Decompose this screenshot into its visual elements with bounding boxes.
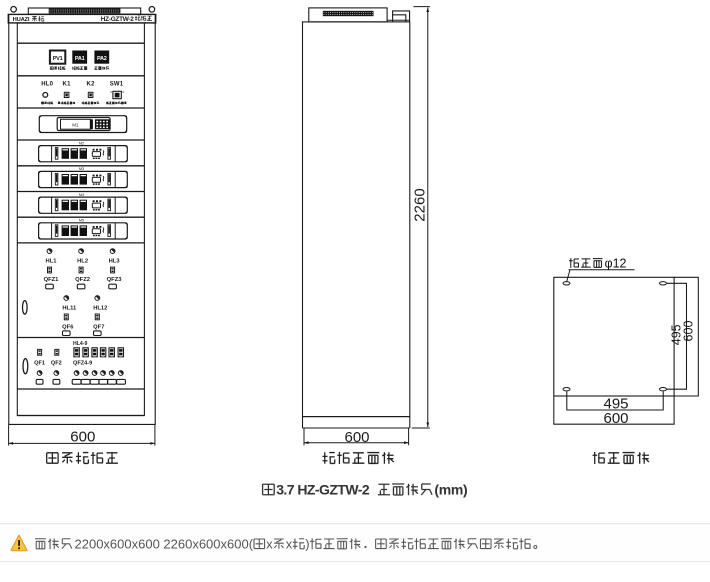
svg-text:PV1: PV1: [53, 56, 63, 62]
svg-text:): ): [305, 536, 309, 551]
svg-text:600: 600: [681, 321, 695, 342]
svg-text:K1: K1: [63, 82, 72, 88]
svg-text:SW1: SW1: [110, 82, 124, 88]
svg-text:M3: M3: [79, 167, 84, 171]
svg-text:QF2: QF2: [51, 360, 62, 366]
svg-text:M2: M2: [79, 141, 84, 145]
svg-text:PA2: PA2: [97, 56, 107, 62]
svg-text:": ": [122, 91, 124, 96]
svg-text:HUAZI: HUAZI: [13, 17, 30, 23]
svg-text:3.7 HZ-GZTW-2: 3.7 HZ-GZTW-2: [276, 482, 370, 498]
svg-text:600: 600: [70, 429, 95, 446]
svg-text:HL11: HL11: [62, 305, 77, 311]
svg-text:QF1: QF1: [34, 360, 45, 366]
svg-text:HL3: HL3: [109, 259, 121, 265]
svg-text:QFZ1: QFZ1: [44, 277, 60, 283]
svg-text:M1: M1: [72, 122, 79, 127]
svg-text:HL1: HL1: [46, 259, 58, 265]
svg-text:HL0: HL0: [41, 82, 53, 88]
svg-text:x: x: [286, 536, 293, 551]
svg-text:φ12: φ12: [605, 256, 627, 270]
svg-text:2200x600x600 2260x600x600(: 2200x600x600 2260x600x600(: [75, 536, 254, 551]
svg-text:M4: M4: [79, 193, 84, 197]
svg-text:PA1: PA1: [75, 56, 85, 62]
svg-text:K2: K2: [87, 82, 96, 88]
svg-text:x: x: [266, 536, 273, 551]
svg-text:HL12: HL12: [93, 305, 107, 311]
svg-text:QFZ3: QFZ3: [107, 277, 123, 283]
svg-text:HZ-GZTW-2: HZ-GZTW-2: [101, 16, 134, 23]
svg-text:600: 600: [344, 429, 369, 446]
svg-text:": ": [110, 91, 112, 96]
svg-text:QF7: QF7: [93, 324, 104, 330]
svg-text:QF6: QF6: [62, 324, 74, 330]
svg-text:2260: 2260: [411, 188, 428, 221]
svg-text:M5: M5: [79, 219, 84, 223]
svg-text:600: 600: [603, 410, 628, 427]
svg-text:HL4-9: HL4-9: [73, 341, 88, 347]
svg-text:QFZ4-9: QFZ4-9: [73, 360, 92, 366]
svg-text:(mm): (mm): [434, 482, 467, 498]
svg-text:HL2: HL2: [77, 259, 88, 265]
svg-text:QFZ2: QFZ2: [75, 277, 90, 283]
